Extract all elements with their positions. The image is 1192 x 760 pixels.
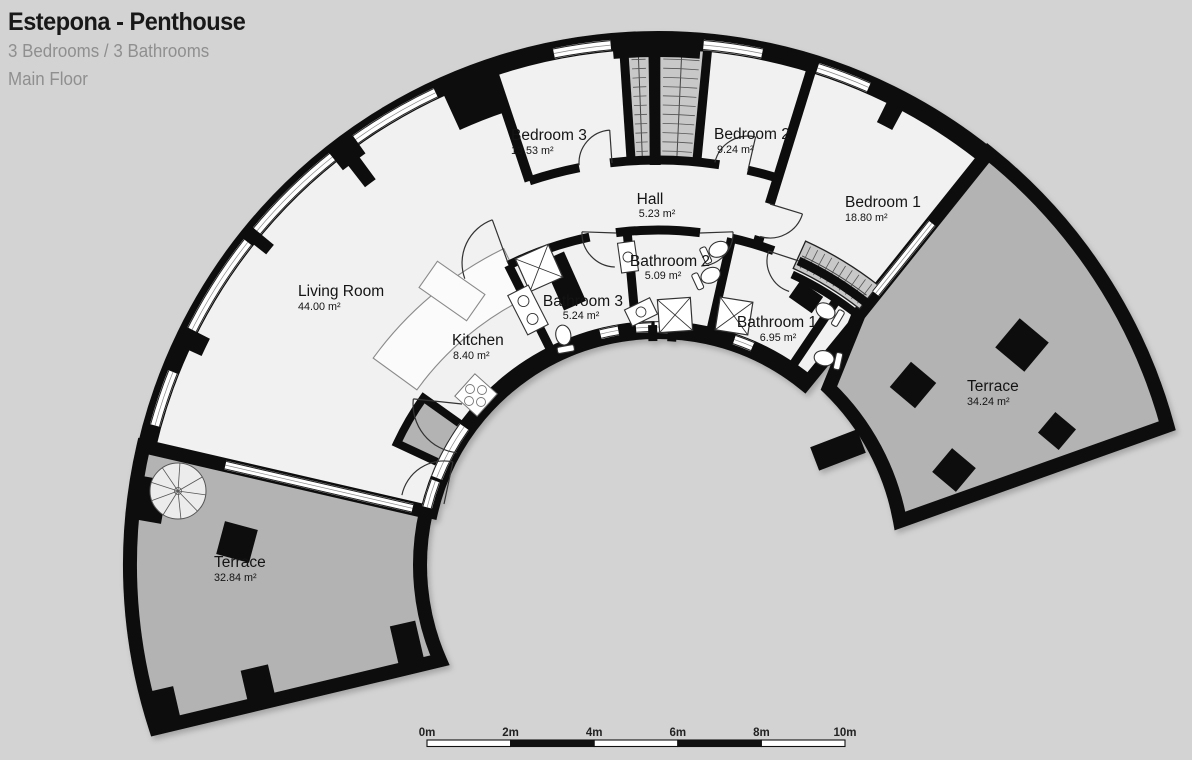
scale-label-4m: 4m bbox=[586, 727, 603, 739]
room-area-terrace-right: 34.24 m² bbox=[967, 396, 1010, 408]
scale-label-2m: 2m bbox=[502, 727, 519, 739]
room-area-bathroom-3: 5.24 m² bbox=[563, 310, 600, 322]
room-label-living-room: Living Room bbox=[298, 283, 384, 300]
room-area-bathroom-2: 5.09 m² bbox=[645, 270, 682, 282]
room-label-kitchen: Kitchen bbox=[452, 332, 504, 349]
scale-label-10m: 10m bbox=[833, 727, 856, 739]
room-label-hall: Hall bbox=[637, 191, 664, 208]
room-area-bathroom-1: 6.95 m² bbox=[760, 332, 797, 344]
room-label-bathroom-1: Bathroom 1 bbox=[737, 314, 817, 331]
room-label-bedroom-2: Bedroom 2 bbox=[714, 126, 790, 143]
scale-bar-graphic bbox=[427, 740, 845, 747]
room-label-bathroom-2: Bathroom 2 bbox=[630, 253, 710, 270]
scale-label-0m: 0m bbox=[419, 727, 436, 739]
room-area-bedroom-3: 13.53 m² bbox=[511, 145, 554, 157]
scale-bar: 0m 2m 4m 6m 8m 10m bbox=[419, 727, 857, 739]
spiral-staircase bbox=[150, 463, 206, 519]
floor-plan: Living Room 44.00 m² Kitchen 8.40 m² Bat… bbox=[0, 0, 1192, 760]
page-title: Estepona - Penthouse bbox=[8, 8, 245, 37]
room-area-bedroom-2: 9.24 m² bbox=[717, 144, 754, 156]
room-area-bedroom-1: 18.80 m² bbox=[845, 212, 888, 224]
floor-label: Main Floor bbox=[8, 69, 88, 90]
scale-label-6m: 6m bbox=[669, 727, 686, 739]
room-area-hall: 5.23 m² bbox=[639, 208, 676, 220]
page-subtitle: 3 Bedrooms / 3 Bathrooms bbox=[8, 41, 209, 62]
scale-label-8m: 8m bbox=[753, 727, 770, 739]
room-label-bedroom-1: Bedroom 1 bbox=[845, 194, 921, 211]
room-label-bathroom-3: Bathroom 3 bbox=[543, 293, 623, 310]
room-area-terrace-left: 32.84 m² bbox=[214, 572, 257, 584]
floor-plan-page: Living Room 44.00 m² Kitchen 8.40 m² Bat… bbox=[0, 0, 1192, 760]
room-label-terrace-right: Terrace bbox=[967, 378, 1019, 395]
room-label-terrace-left: Terrace bbox=[214, 554, 266, 571]
room-area-kitchen: 8.40 m² bbox=[453, 350, 490, 362]
room-area-living-room: 44.00 m² bbox=[298, 301, 341, 313]
room-label-bedroom-3: Bedroom 3 bbox=[511, 127, 587, 144]
